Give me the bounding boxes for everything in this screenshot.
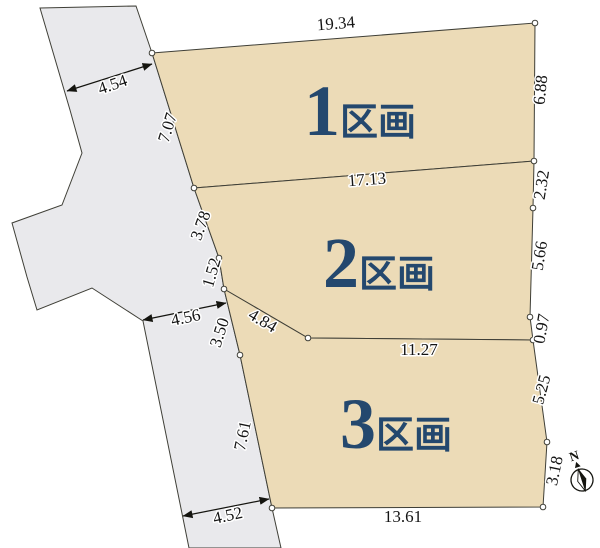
compass-north-indicator: N (561, 445, 596, 495)
parcel-1-suffix: 区画 (340, 102, 416, 144)
parcel-2-suffix: 区画 (359, 254, 435, 296)
land-plot-diagram: 4.54 7.07 19.34 6.88 17.13 3.78 2.32 5.6… (0, 0, 600, 548)
dimension-parcel2-east-upper: 2.32 (530, 169, 553, 201)
boundary-vertex (530, 205, 536, 211)
boundary-vertex (305, 335, 311, 341)
dimension-parcel2-east-middle: 5.66 (528, 240, 551, 272)
dimension-parcel3-south: 13.61 (384, 507, 422, 526)
boundary-vertex (237, 352, 243, 358)
dimension-parcel1-south: 17.13 (347, 169, 386, 191)
compass-north-label: N (567, 447, 581, 464)
boundary-vertex (221, 286, 227, 292)
boundary-vertex (191, 185, 197, 191)
boundary-vertex (544, 439, 550, 445)
dimension-parcel1-north: 19.34 (316, 12, 356, 34)
boundary-vertex (532, 20, 538, 26)
boundary-vertex (540, 504, 546, 510)
boundary-vertex (531, 158, 537, 164)
dimension-parcel3-north: 11.27 (400, 340, 438, 359)
boundary-vertex (149, 50, 155, 56)
dimension-parcel2-east-lower: 0.97 (529, 312, 553, 345)
dimension-parcel1-east: 6.88 (529, 74, 551, 106)
parcel-2-number: 2 (323, 223, 359, 303)
parcel-3-number: 3 (340, 384, 376, 464)
boundary-vertex (269, 505, 275, 511)
parcel-1-number: 1 (304, 71, 340, 151)
parcel-3-suffix: 区画 (376, 415, 452, 457)
boundary-vertex (527, 314, 533, 320)
